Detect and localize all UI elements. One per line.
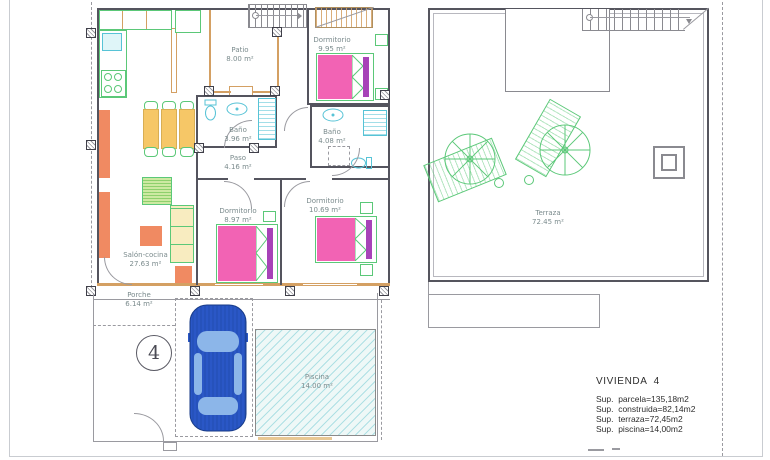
pillar [379,286,389,296]
sheet-frame-bottom [9,456,763,457]
driveway-dashed-line [93,325,175,326]
summary-block: VIVIENDA 4 Sup. parcela=135,18m2 Sup. co… [596,376,695,434]
bed-dorm995 [316,53,374,101]
room-label-dormitorio-897: Dormitorio8.97 m² [208,207,268,225]
bed-dorm1069 [315,216,377,263]
toilet-icon [203,99,218,125]
pillow [363,57,369,97]
sink-icon [226,101,248,120]
lower-annex-outline [428,294,600,328]
kitchen-sink [102,33,122,51]
mattress [317,218,355,261]
stairs-roof [582,9,685,31]
stray-mark [588,449,604,451]
pillar [86,286,96,296]
kitchen-tall-cabinet [171,28,177,93]
pillar [86,28,96,38]
pillar [285,286,295,296]
dining-table [179,109,195,149]
garden-wall-left [93,293,94,442]
pillar [380,90,390,100]
room-label-piscina: Piscina14.00 m² [287,373,347,391]
counter-divider [122,11,123,29]
pillow [267,228,273,279]
wall-between-dorms [280,180,282,285]
stair-arrow-icon [297,12,302,20]
room-label-dormitorio-1069: Dormitorio10.69 m² [294,197,356,215]
stray-mark [612,448,620,450]
room-label-bano-408: Baño4.08 m² [307,128,357,146]
tv-unit [142,177,172,205]
room-label-salon-cocina: Salón-cocina27.63 m² [108,251,183,269]
bed-dorm897 [216,224,278,283]
parcel-boundary-right-dashed [381,300,382,440]
pool-step [258,437,332,440]
garden-wall-bottom [93,441,378,442]
summary-line: Sup. construida=82,14m2 [596,404,695,414]
room-label-bano-396: Baño3.96 m² [213,126,263,144]
pillar [190,286,200,296]
side-table-round [494,178,504,188]
garden-wall-right [377,293,378,442]
side-table [175,266,192,283]
chimney-inner [661,154,677,171]
room-label-porche: Porche6.14 m² [114,291,164,309]
dining-table [143,109,159,149]
wardrobe-left [99,110,110,178]
unit-number: 4 [148,342,160,364]
burner-icon [114,85,122,93]
room-label-terraza: Terraza72.45 m² [513,209,583,227]
sink-icon [322,107,344,126]
summary-line: Sup. parcela=135,18m2 [596,394,695,404]
side-table-round [524,175,534,185]
dining-table [161,109,177,149]
burner-icon [114,73,122,81]
kitchen-counter-top [99,10,172,30]
pillar [194,143,204,153]
coffee-table [140,226,162,246]
stair-direction-line [590,17,690,18]
door-arc-dorm897 [224,181,252,209]
mattress [318,55,352,99]
room-label-paso: Paso4.16 m² [213,154,263,172]
room-label-dormitorio-995: Dormitorio9.95 m² [302,36,362,54]
wall-paso-c [332,178,390,180]
pillar [86,140,96,150]
unit-number-marker: 4 [136,335,172,371]
sheet-frame-left [9,0,10,457]
shower-tray [363,110,387,136]
pillar [249,143,259,153]
summary-title: VIVIENDA 4 [596,376,695,387]
gate-post [163,442,177,451]
burner-icon [104,85,112,93]
chair [162,147,176,157]
patio-wall-right [277,33,279,93]
nightstand [375,34,388,46]
summary-line: Sup. terraza=72,45m2 [596,414,695,424]
room-label-patio: Patio8.00 m² [210,46,270,64]
kitchen-fridge [175,10,201,33]
wall-paso-a [198,178,228,180]
sheet-frame-right [762,0,763,457]
window-dorm897 [215,284,263,285]
annex-connector [428,282,429,294]
pillar [270,86,280,96]
nightstand [360,264,373,276]
chair [180,147,194,157]
burner-icon [104,73,112,81]
summary-line: Sup. piscina=14,00m2 [596,424,695,434]
pillar [272,27,282,37]
parcel-boundary-right [722,2,723,456]
window-dorm1069 [303,284,357,285]
wall-dorm995-left [307,8,309,105]
door-arc-garden-gate [134,413,164,441]
car-top-view [188,303,248,437]
nightstand [360,202,373,214]
mattress [218,226,256,281]
door-arc-bath408 [332,148,360,176]
chair [144,147,158,157]
pillar [204,86,214,96]
wall-salon-dorm897 [196,148,198,285]
stair-direction-line [256,15,298,16]
wardrobe-left [99,192,110,258]
pillow [366,220,372,259]
floor-plan-canvas: 4 [0,0,770,460]
counter-divider [146,11,147,29]
door-arc-dorm995 [284,107,308,131]
